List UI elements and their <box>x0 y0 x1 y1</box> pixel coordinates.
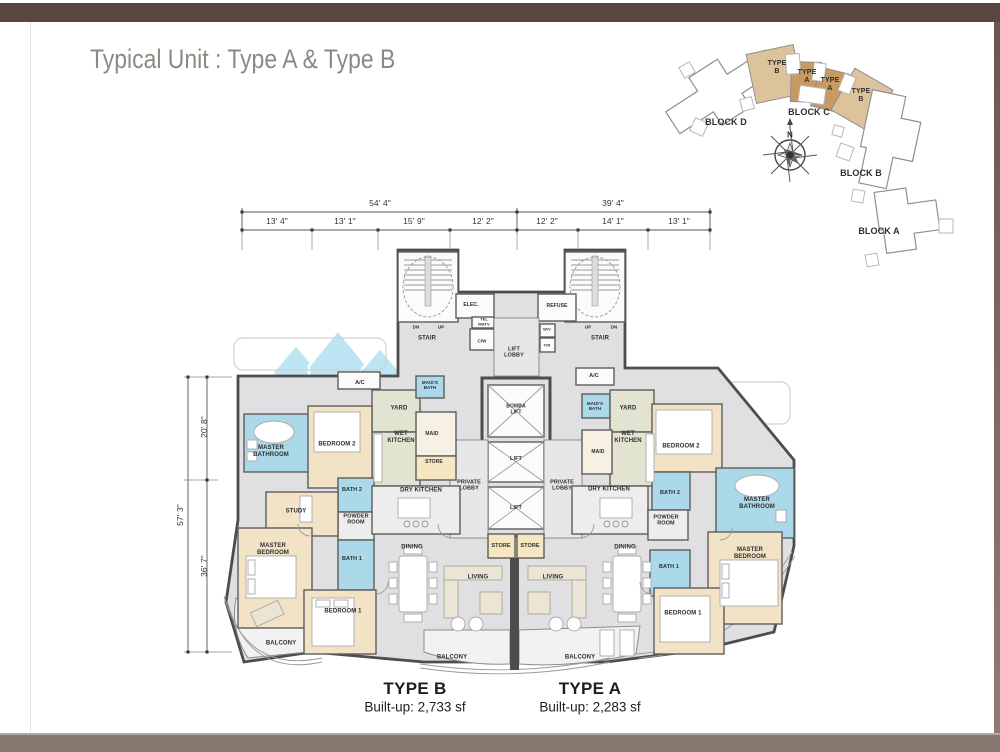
brochure-page: Typical Unit : Type A & Type B <box>0 0 1000 752</box>
type-b-builtup: Built-up: 2,733 sf <box>364 700 465 715</box>
center-party-wall <box>510 558 519 670</box>
key-plan <box>657 35 953 267</box>
block-a-outline <box>874 184 942 254</box>
type-b-name: TYPE B <box>383 679 446 699</box>
compass-icon <box>763 118 817 182</box>
type-a-name: TYPE A <box>559 679 622 699</box>
floor-plan-svg <box>0 0 1000 752</box>
type-a-builtup: Built-up: 2,283 sf <box>539 700 640 715</box>
